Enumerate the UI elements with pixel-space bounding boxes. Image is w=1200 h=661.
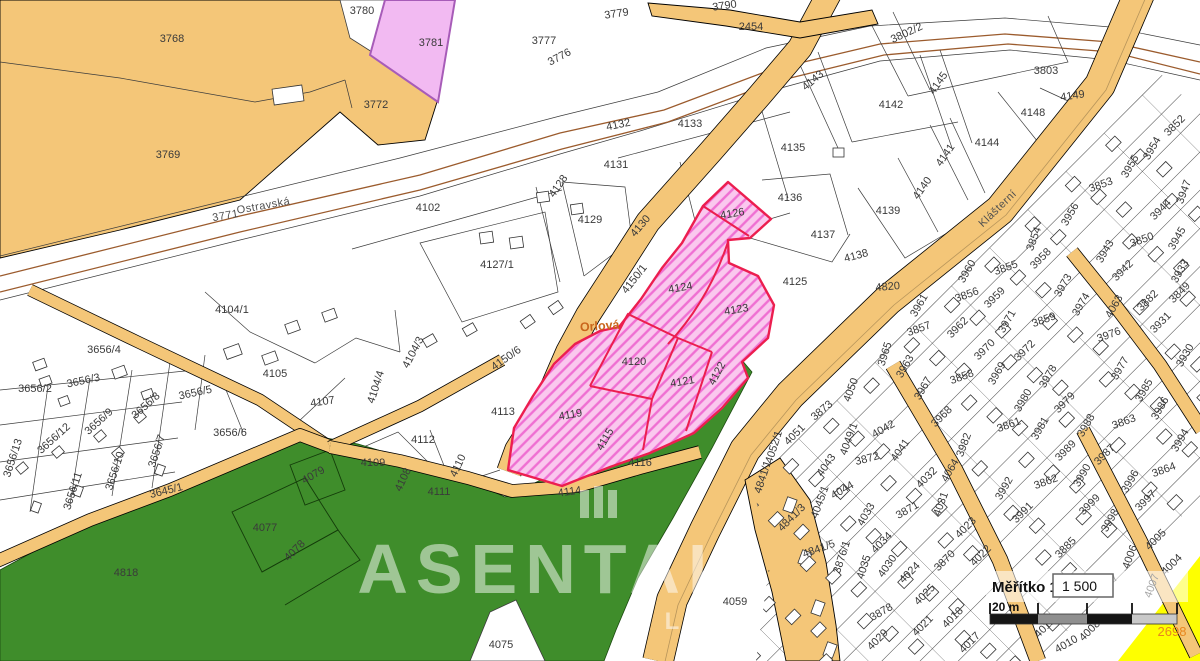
map-label-3781: 3781	[419, 37, 443, 49]
scale-label: Měřítko 1:	[992, 579, 1063, 596]
watermark-logo-bar	[580, 490, 589, 518]
scale-widget: Měřítko 1: 1 500 20 m	[986, 571, 1188, 624]
map-label-4818: 4818	[114, 567, 138, 579]
map-label-3780: 3780	[350, 5, 374, 17]
map-label-4125: 4125	[783, 276, 807, 288]
map-label-4129: 4129	[578, 214, 602, 226]
map-label-4102: 4102	[416, 202, 440, 214]
map-label-4136: 4136	[778, 192, 802, 204]
map-label-4148: 4148	[1021, 107, 1045, 119]
map-label-4820: 4820	[875, 280, 900, 294]
watermark-brand: ASENTAL	[357, 530, 738, 608]
map-label-3769: 3769	[156, 149, 180, 161]
map-label-4135: 4135	[781, 142, 805, 154]
map-label-4104/1: 4104/1	[215, 304, 249, 316]
map-label-4142: 4142	[879, 99, 903, 111]
map-label-4116: 4116	[628, 457, 652, 469]
map-label-4133: 4133	[678, 118, 702, 130]
map-label-4111: 4111	[428, 486, 451, 498]
scale-bar-label: 20 m	[992, 600, 1019, 614]
map-label-4120: 4120	[622, 356, 646, 368]
map-label-4137: 4137	[811, 229, 835, 241]
watermark-logo-bar	[594, 486, 603, 518]
map-label-4077: 4077	[253, 522, 277, 534]
map-label-2698: 2698	[1158, 624, 1187, 639]
map-label-3803: 3803	[1034, 65, 1058, 77]
map-label-4144: 4144	[975, 137, 999, 149]
map-label-3768: 3768	[160, 33, 184, 45]
watermark-sub: LAND	[665, 608, 772, 635]
map-label-4105: 4105	[263, 368, 287, 380]
map-label-4112: 4112	[411, 434, 435, 446]
map-label-4127/1: 4127/1	[480, 259, 514, 271]
map-label-4113: 4113	[491, 406, 515, 418]
map-label-3656/6: 3656/6	[213, 427, 247, 439]
map-canvas[interactable]: 3768376937803772378137773776377937902454…	[0, 0, 1200, 661]
map-label-2454: 2454	[739, 21, 763, 33]
map-label-4139: 4139	[876, 205, 900, 217]
cadastral-map-screen: 3768376937803772378137773776377937902454…	[0, 0, 1200, 661]
map-label-Orlová: Orlová	[579, 318, 620, 335]
watermark-logo-bar	[608, 490, 617, 518]
map-label-3656/2: 3656/2	[18, 383, 52, 395]
map-label-4109: 4109	[361, 457, 385, 469]
map-label-4075: 4075	[489, 639, 513, 651]
scale-value: 1 500	[1062, 578, 1097, 594]
map-label-3656/4: 3656/4	[87, 344, 121, 356]
map-label-3772: 3772	[364, 99, 388, 111]
map-label-4131: 4131	[604, 159, 628, 171]
map-label-3777: 3777	[532, 35, 556, 47]
